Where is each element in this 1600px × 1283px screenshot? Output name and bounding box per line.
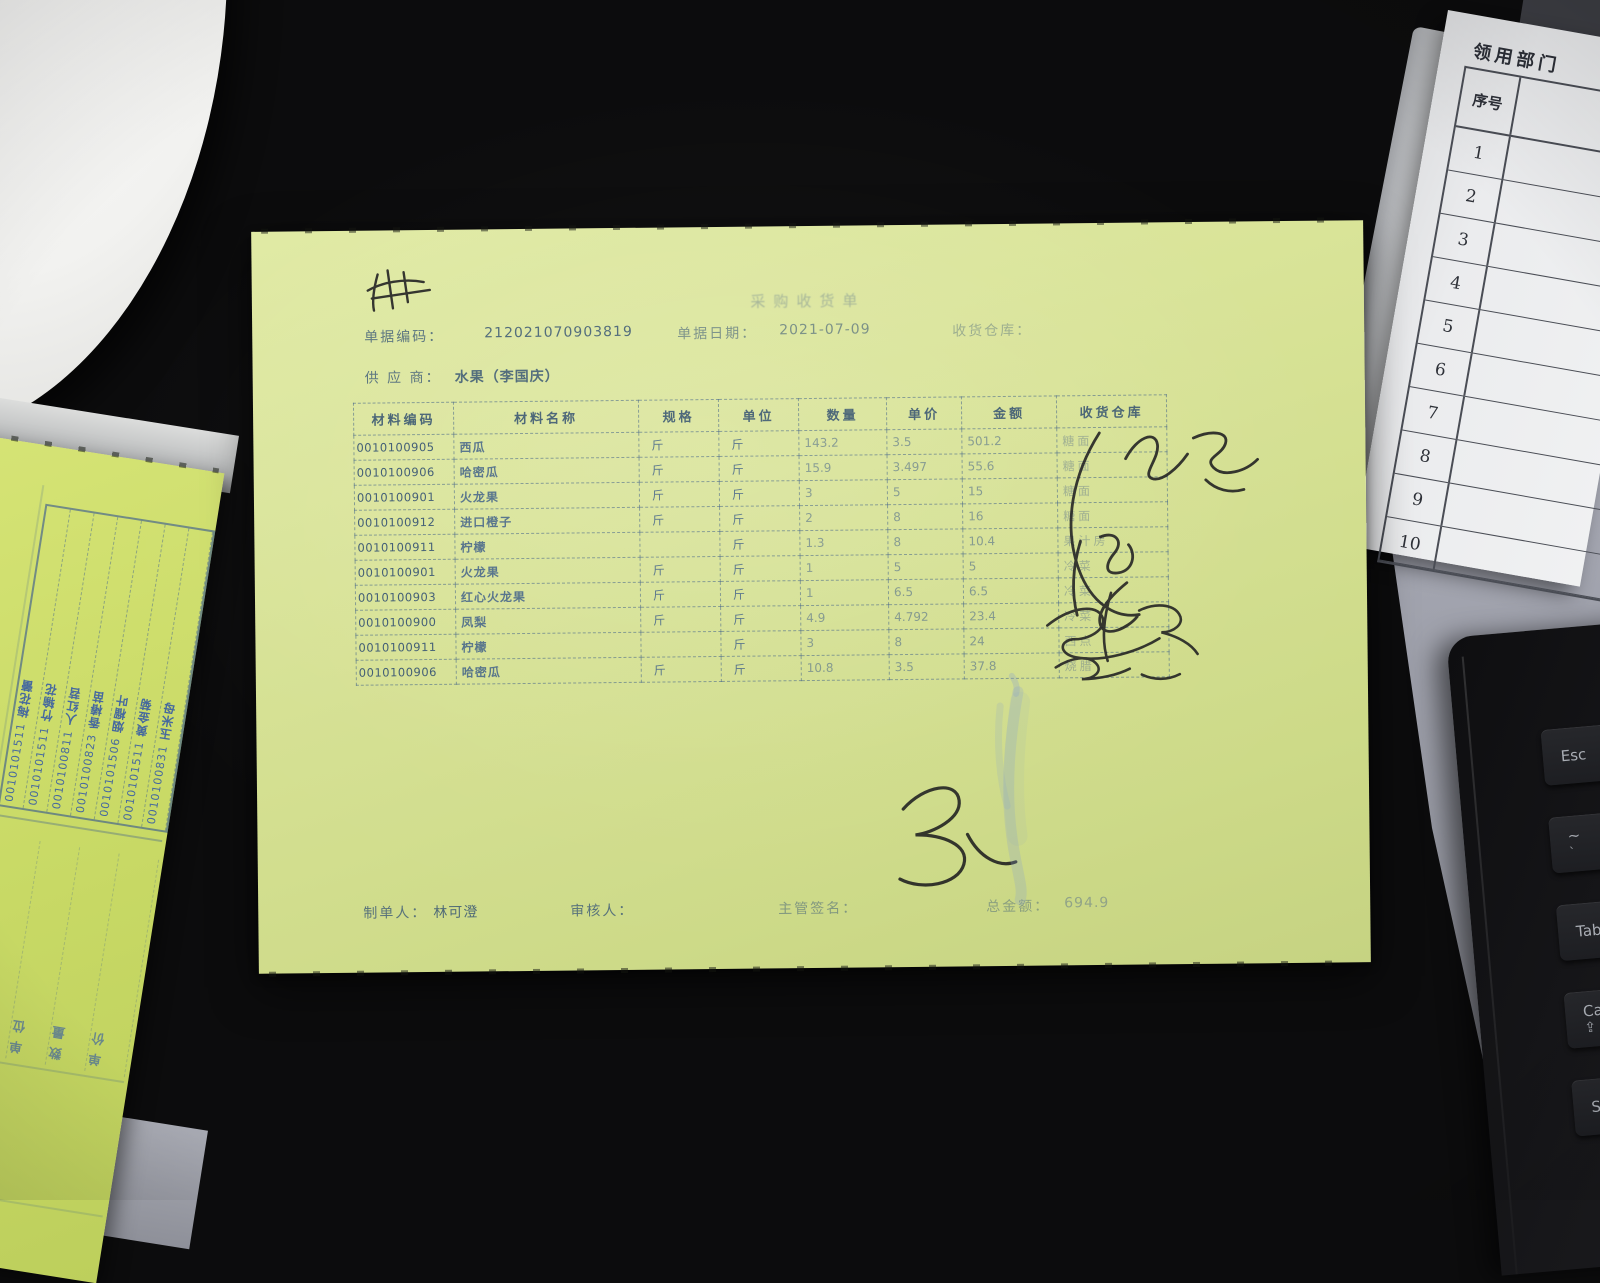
key-sub-label: `	[1568, 844, 1576, 862]
table-cell: 斤	[719, 431, 799, 457]
doc-date-value: 2021-07-09	[779, 321, 871, 338]
maker-value: 林可澄	[433, 902, 478, 922]
column-header: 单价	[886, 397, 961, 430]
key-label: Shift	[1591, 1096, 1600, 1116]
receipt-footer: 制单人： 林可澄 审核人： 主管签名： 总金额： 694.9	[258, 892, 1370, 904]
table-cell: 斤	[639, 431, 719, 457]
maker-label: 制单人：	[363, 902, 427, 923]
supplier-label: 供 应 商：	[365, 370, 442, 387]
doc-date-label: 单据日期：	[677, 326, 757, 343]
material-name: 香椿苗	[86, 689, 107, 735]
table-cell: 斤	[641, 606, 721, 632]
table-cell: 斤	[639, 456, 719, 482]
signature-bottom	[899, 787, 1016, 885]
table-cell: 10.4	[963, 528, 1058, 554]
auditor-label: 审核人：	[570, 900, 634, 921]
table-cell: 16	[963, 503, 1058, 529]
caps-lock-icon: ⇪	[1584, 1019, 1597, 1037]
table-cell: 烧腊	[1059, 652, 1169, 678]
manager-label: 主管签名：	[778, 898, 858, 919]
table-cell: 柠檬	[455, 532, 640, 559]
table-cell: 0010100911	[355, 534, 455, 560]
table-cell: 斤	[721, 606, 801, 632]
table-cell: 冷菜	[1058, 577, 1168, 603]
left-column-headers: 规格单位数量单价	[0, 835, 159, 1077]
table-cell: 火龙果	[455, 557, 640, 584]
key-caps: Caps⇪	[1563, 980, 1600, 1049]
doc-code-value: 212021070903819	[484, 324, 633, 342]
receipt-table-body: 0010100905西瓜斤斤143.23.5501.2糖面0010100906哈…	[354, 427, 1170, 685]
table-cell: 斤	[640, 506, 720, 532]
table-cell: 3	[799, 480, 887, 506]
table-cell: 5	[888, 554, 963, 580]
table-cell: 糖面	[1057, 452, 1167, 478]
table-cell: 斤	[719, 481, 799, 507]
table-cell: 15.9	[799, 455, 887, 481]
table-cell: 斤	[720, 506, 800, 532]
material-name: 竹输花	[39, 682, 60, 728]
table-cell: 糖面	[1057, 427, 1167, 453]
table-cell: 斤	[640, 556, 720, 582]
table-cell: 红心火龙果	[455, 582, 640, 609]
table-cell: 6.5	[888, 579, 963, 605]
table-cell: 0010100912	[355, 509, 455, 535]
material-name: 黄金菊	[134, 697, 155, 743]
table-cell: 5	[887, 479, 962, 505]
table-cell: 3	[801, 630, 889, 656]
table-cell: 糖面	[1057, 477, 1167, 503]
table-cell: 23.4	[964, 603, 1059, 629]
table-cell: 3.5	[887, 429, 962, 455]
table-cell: 进口橙子	[455, 507, 640, 534]
table-cell: 8	[889, 629, 964, 655]
column-header: 材料编码	[353, 402, 453, 435]
table-cell: 1.3	[800, 530, 888, 556]
table-cell: 4.792	[889, 604, 964, 630]
table-cell: 3.5	[889, 654, 964, 680]
material-name: 人红苕	[62, 686, 83, 732]
table-cell: 0010100906	[356, 659, 456, 685]
table-cell: 8	[888, 504, 963, 530]
key-label: ~	[1567, 827, 1581, 845]
table-cell: 4.9	[801, 605, 889, 631]
table-cell: 斤	[720, 581, 800, 607]
table-cell: 斤	[640, 581, 720, 607]
table-cell: 冷菜	[1059, 602, 1169, 628]
recv-warehouse-label: 收货仓库：	[952, 323, 1032, 340]
table-cell: 10.8	[801, 655, 889, 681]
table-cell: 15	[962, 478, 1057, 504]
table-cell: 3.497	[887, 454, 962, 480]
doc-code-label: 单据编码：	[364, 329, 444, 346]
key-esc: Esc	[1540, 717, 1600, 786]
grid-line	[0, 1175, 103, 1217]
table-cell: 0010100900	[356, 609, 456, 635]
key-label: Tab	[1575, 922, 1600, 941]
table-cell: 哈密瓜	[454, 457, 639, 484]
serial-cell: 10	[1380, 517, 1443, 569]
key-label: Caps	[1582, 1000, 1600, 1020]
key-tab: Tab	[1556, 892, 1600, 961]
table-cell: 0010100911	[356, 634, 456, 660]
table-cell: 0010100901	[354, 484, 454, 510]
supplier-value: 水果（李国庆）	[455, 369, 560, 386]
material-name: 烟榴叶	[110, 693, 131, 739]
table-cell: 斤	[720, 531, 800, 557]
column-header: 收货仓库	[1056, 395, 1166, 428]
key-~: ~`	[1548, 805, 1600, 874]
table-cell: 火龙果	[454, 482, 639, 509]
table-cell: 冷菜	[1058, 552, 1168, 578]
table-cell: 55.6	[962, 453, 1057, 479]
table-cell: 西瓜	[454, 432, 639, 459]
key-shift: Shift	[1571, 1068, 1600, 1137]
table-cell	[640, 531, 720, 557]
total-value: 694.9	[1064, 895, 1109, 911]
receipt-table: 材料编码材料名称规格单位数量单价金额收货仓库 0010100905西瓜斤斤143…	[353, 394, 1170, 686]
purchase-receipt-paper: 采购收货单 单据编码： 212021070903819 单据日期： 2021-0…	[251, 220, 1371, 974]
table-cell: 0010100906	[354, 459, 454, 485]
material-name: 梅花蕾	[15, 678, 36, 724]
table-cell: 6.5	[963, 578, 1058, 604]
serial-header: 序号	[1456, 68, 1521, 135]
table-cell: 哈密瓜	[456, 657, 641, 684]
table-cell: 斤	[720, 556, 800, 582]
table-cell: 501.2	[962, 428, 1057, 454]
table-cell: 斤	[721, 656, 801, 682]
total-label: 总金额：	[986, 896, 1050, 917]
column-header: 金额	[961, 396, 1056, 429]
table-cell: 1	[800, 555, 888, 581]
table-cell: 5	[963, 553, 1058, 579]
table-cell: 1	[800, 580, 888, 606]
table-cell: 37.8	[964, 653, 1059, 679]
key-label: Esc	[1560, 746, 1587, 765]
table-cell: 24	[964, 628, 1059, 654]
table-cell: 西点	[1059, 627, 1169, 653]
table-cell: 2	[800, 505, 888, 531]
table-cell: 斤	[721, 631, 801, 657]
table-cell: 143.2	[799, 430, 887, 456]
receipt-title: 采购收货单	[252, 284, 1364, 317]
column-header: 单位	[718, 399, 798, 432]
column-header: 数量	[798, 398, 886, 431]
table-cell: 凤梨	[456, 607, 641, 634]
column-header: 规格	[638, 399, 718, 432]
table-cell: 0010100901	[355, 559, 455, 585]
table-cell: 柠檬	[456, 632, 641, 659]
table-cell: 0010100903	[355, 584, 455, 610]
material-code: 0010101511	[2, 722, 27, 803]
white-round-object	[0, 0, 269, 467]
table-cell: 糖面	[1058, 502, 1168, 528]
table-cell: 0010100905	[354, 434, 454, 460]
table-cell: 斤	[719, 456, 799, 482]
table-cell: 8	[888, 529, 963, 555]
material-name: 玉米母	[157, 701, 178, 747]
column-header: 材料名称	[453, 400, 638, 434]
table-cell: 斤	[641, 656, 721, 682]
blue-smudge	[998, 676, 1022, 900]
table-cell	[641, 631, 721, 657]
table-cell: 斤	[639, 481, 719, 507]
table-cell: 果汁房	[1058, 527, 1168, 553]
